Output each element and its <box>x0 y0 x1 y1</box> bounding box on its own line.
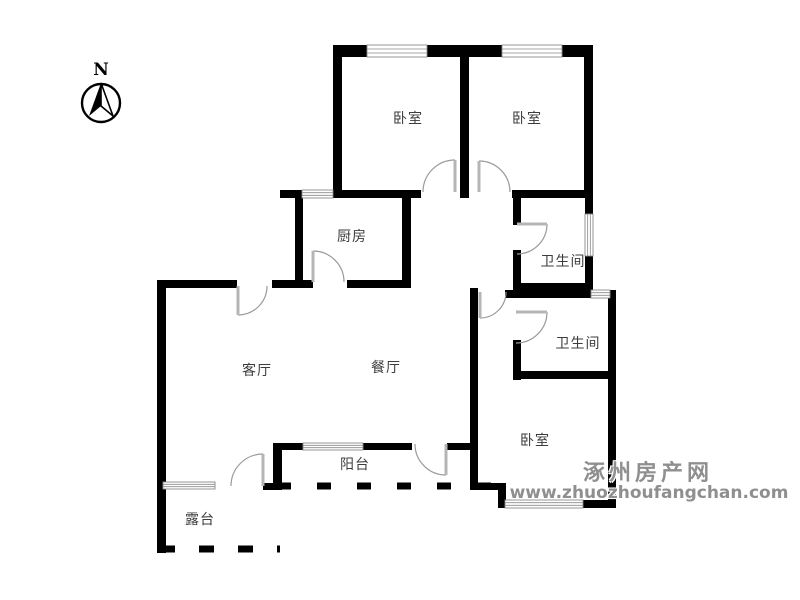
wall <box>157 280 237 288</box>
window-icon <box>591 290 610 298</box>
wall <box>347 280 410 288</box>
window-icon <box>585 214 593 256</box>
doors-layer <box>231 160 547 486</box>
door-swing-arc <box>238 286 267 315</box>
wall <box>512 190 593 198</box>
wall <box>513 198 521 225</box>
wall <box>295 190 303 288</box>
north-compass <box>82 83 120 122</box>
wall <box>402 190 411 288</box>
windows-layer <box>163 45 610 508</box>
door-swing-arc <box>479 161 510 192</box>
door-swing-arc <box>516 312 547 343</box>
window-icon <box>302 190 333 198</box>
watermark-site-url: www.zhuozhoufangchan.com <box>510 483 789 503</box>
window-icon <box>163 482 215 489</box>
window-icon <box>303 443 363 450</box>
wall <box>470 288 478 490</box>
door-swing-arc <box>423 160 455 192</box>
wall <box>333 45 342 198</box>
window-icon <box>367 45 427 57</box>
wall <box>513 283 593 291</box>
floorplan-drawing <box>0 0 800 600</box>
door-swing-arc <box>480 292 506 318</box>
open-edges-layer <box>160 486 500 549</box>
wall <box>584 45 593 198</box>
wall <box>272 280 313 288</box>
door-swing-arc <box>415 444 446 475</box>
wall <box>460 45 469 198</box>
door-swing-arc <box>231 454 263 486</box>
window-icon <box>502 45 562 57</box>
floorplan-page: N 卧室卧室厨房卫生间卫生间客厅餐厅阳台露台卧室 涿州房产网 www.zhuoz… <box>0 0 800 600</box>
compass-north-label: N <box>93 60 109 80</box>
walls-layer <box>157 45 616 553</box>
wall <box>447 443 470 450</box>
wall <box>585 198 593 215</box>
wall <box>513 371 616 379</box>
wall <box>157 280 166 553</box>
door-swing-arc <box>517 224 547 254</box>
door-swing-arc <box>313 251 344 282</box>
